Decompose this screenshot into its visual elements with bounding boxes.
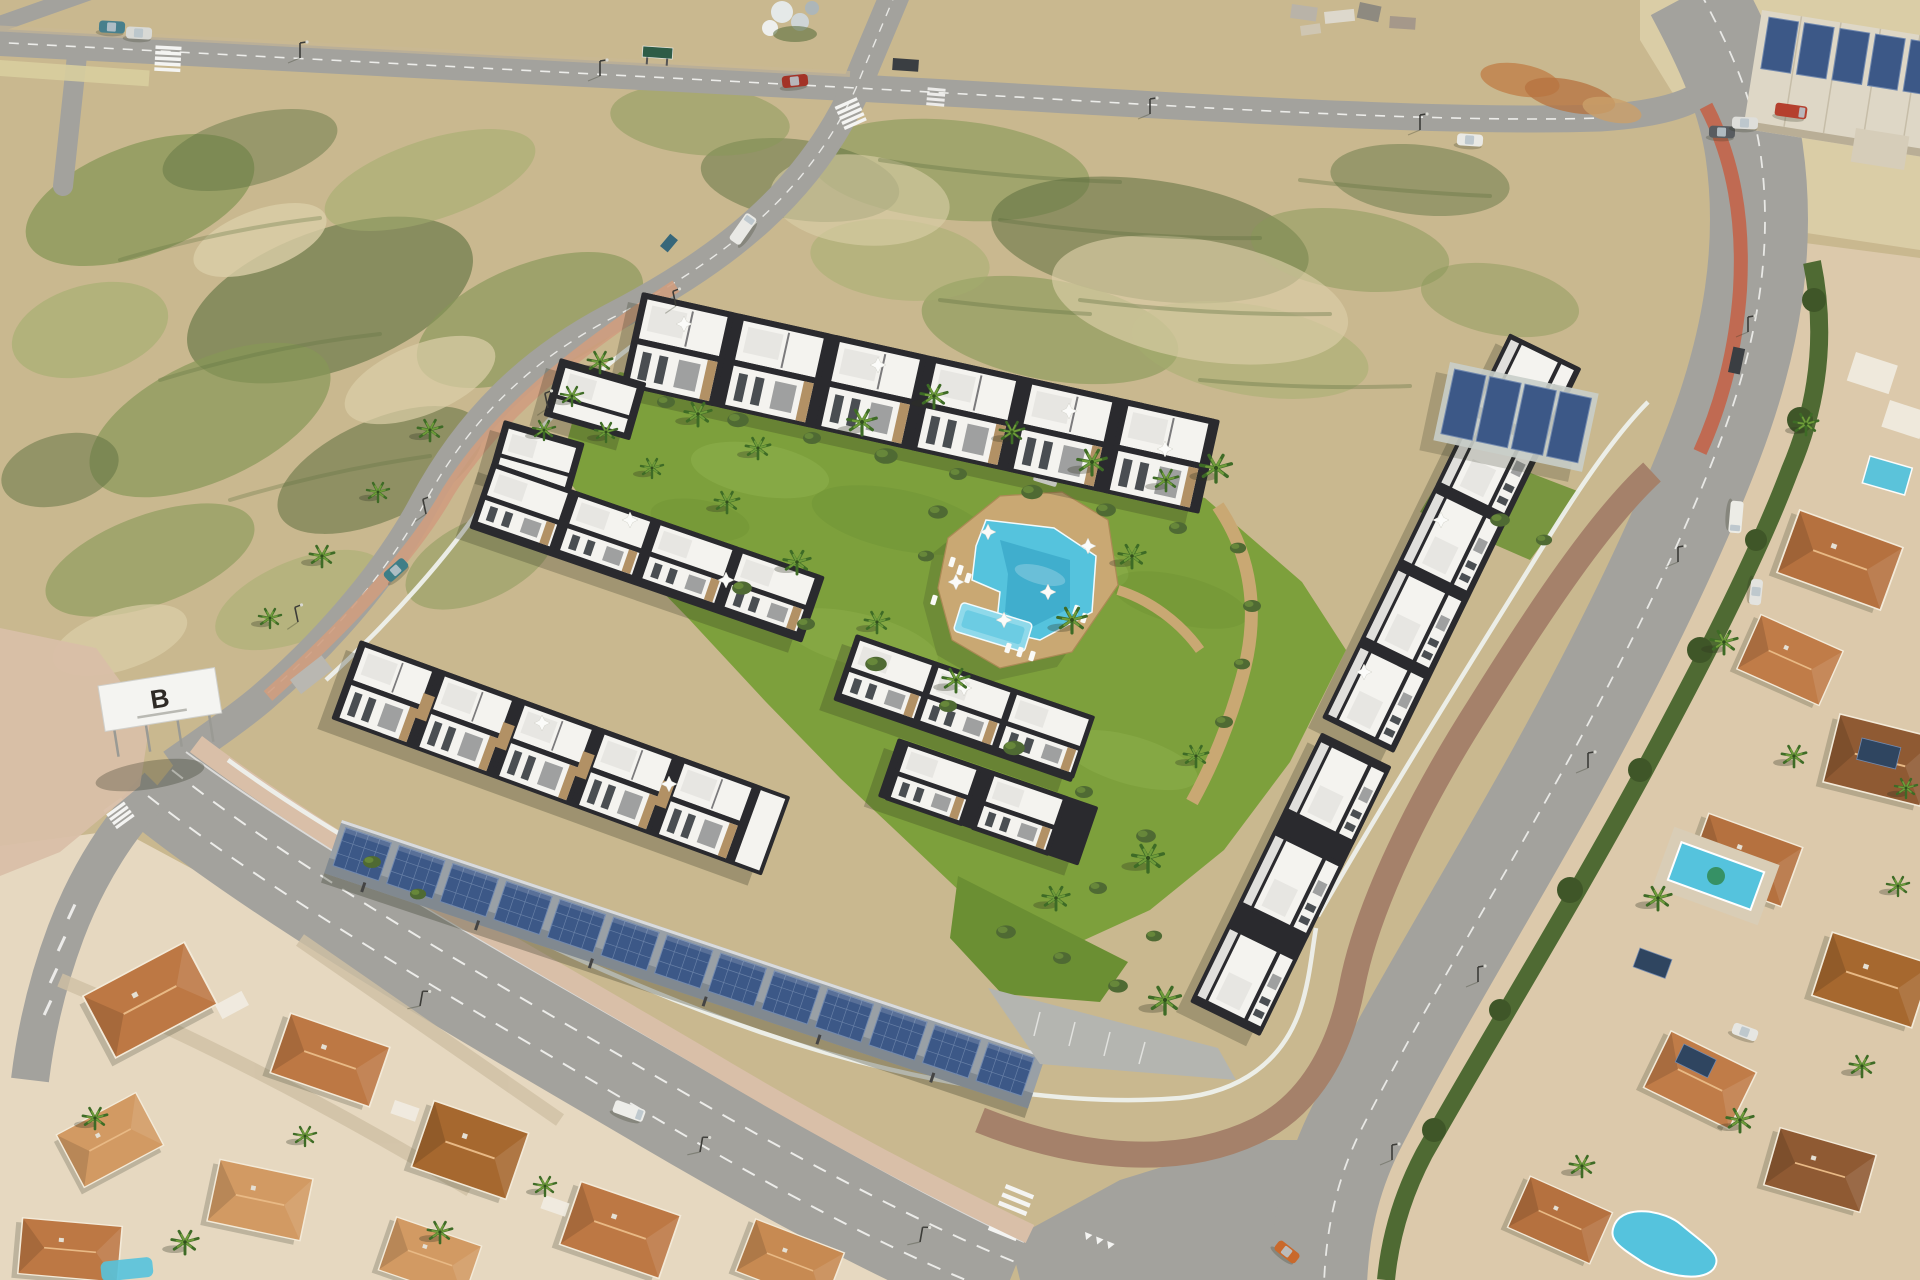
aerial-photo: B [0, 0, 1920, 1280]
car [1729, 116, 1759, 132]
bus-shelter [892, 58, 919, 72]
car [96, 20, 126, 37]
car [123, 26, 153, 43]
